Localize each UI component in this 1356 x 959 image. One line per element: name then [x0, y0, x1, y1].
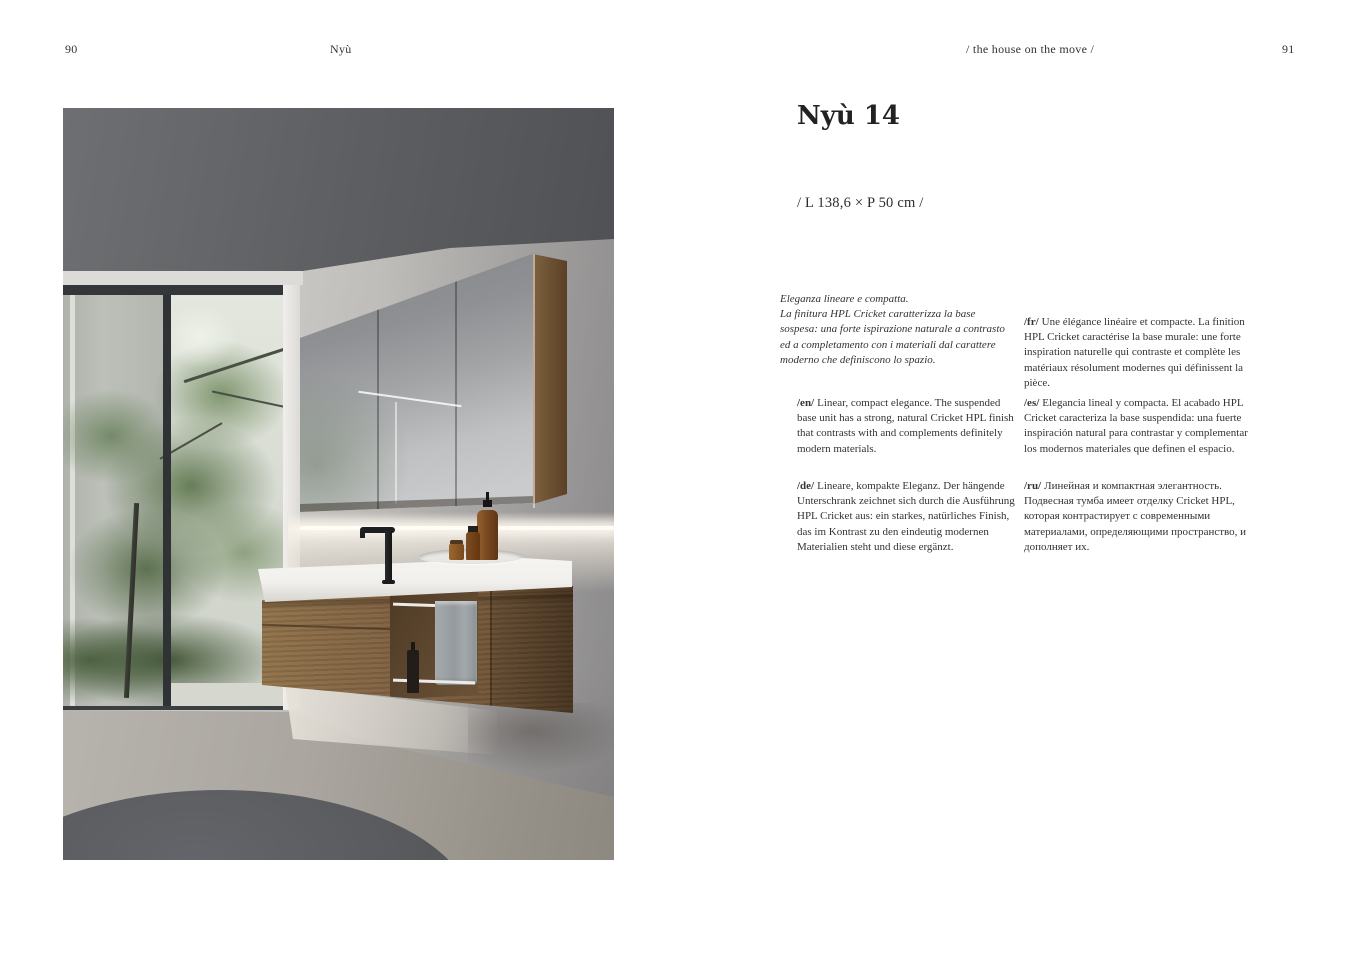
mirror-reflection-glass-edge	[395, 402, 397, 504]
amber-jar	[449, 544, 464, 560]
lang-label-es: /es/	[1024, 397, 1039, 409]
description-text-en: Linear, compact elegance. The suspended …	[797, 397, 1014, 455]
mirror-reflection-foliage	[300, 352, 460, 512]
description-english: /en/Linear, compact elegance. The suspen…	[797, 396, 1019, 457]
led-light-strip	[300, 526, 614, 530]
description-french: /fr/Une élégance linéaire et compacte. L…	[1024, 315, 1249, 391]
vanity-side-panel-shade	[492, 586, 573, 716]
product-photo-bathroom-vanity	[63, 108, 614, 860]
shelf-bottle	[407, 650, 419, 693]
black-faucet-base	[382, 580, 395, 584]
description-german: /de/Lineare, kompakte Eleganz. Der hänge…	[797, 479, 1019, 555]
product-dimensions: / L 138,6 × P 50 cm /	[797, 195, 924, 212]
amber-bottle-tall	[477, 510, 498, 560]
description-spanish: /es/Elegancia lineal y compacta. El acab…	[1024, 396, 1249, 457]
mirror-cabinet-wood-side	[533, 252, 567, 512]
lang-label-ru: /ru/	[1024, 480, 1041, 492]
mirror-door-seam	[455, 272, 457, 512]
product-title: Nyù 14	[797, 101, 900, 131]
description-text-ru: Линейная и компактная элегантность. Подв…	[1024, 480, 1246, 553]
gray-towel	[435, 601, 477, 685]
description-text-de: Lineare, kompakte Eleganz. Der hängende …	[797, 480, 1015, 553]
window-sill	[63, 706, 283, 710]
amber-bottle-medium	[466, 532, 480, 560]
mirror-door-seam	[377, 272, 379, 512]
right-page-number: 91	[1282, 42, 1295, 57]
photo-wall-band-above-window	[63, 271, 303, 285]
description-text-fr: Une élégance linéaire et compacte. La fi…	[1024, 316, 1245, 389]
lang-label-fr: /fr/	[1024, 316, 1039, 328]
black-faucet-stem	[385, 531, 392, 584]
window-mullion	[163, 295, 171, 710]
mirror-cabinet-corner-highlight	[533, 254, 535, 508]
black-faucet-nozzle	[360, 531, 365, 538]
garden-foliage	[63, 295, 283, 710]
description-italian: Eleganza lineare e compatta. La finitura…	[780, 292, 1013, 368]
lang-label-en: /en/	[797, 397, 814, 409]
mirror-cabinet	[300, 252, 567, 512]
window-frame-top	[63, 285, 300, 295]
open-shelf-compartment	[390, 588, 478, 700]
soap-pump-head	[483, 500, 492, 507]
description-text-es: Elegancia lineal y compacta. El acabado …	[1024, 397, 1248, 455]
mirror-cabinet-doors	[300, 252, 535, 512]
right-running-title: / the house on the move /	[966, 42, 1094, 57]
catalog-spread: 90 Nyù / the house on the move / 91	[0, 0, 1356, 959]
left-running-title: Nyù	[330, 42, 352, 57]
description-russian: /ru/Линейная и компактная элегантность. …	[1024, 479, 1249, 555]
vanity-cast-shadow	[468, 703, 614, 773]
left-page-number: 90	[65, 42, 78, 57]
lang-label-de: /de/	[797, 480, 814, 492]
